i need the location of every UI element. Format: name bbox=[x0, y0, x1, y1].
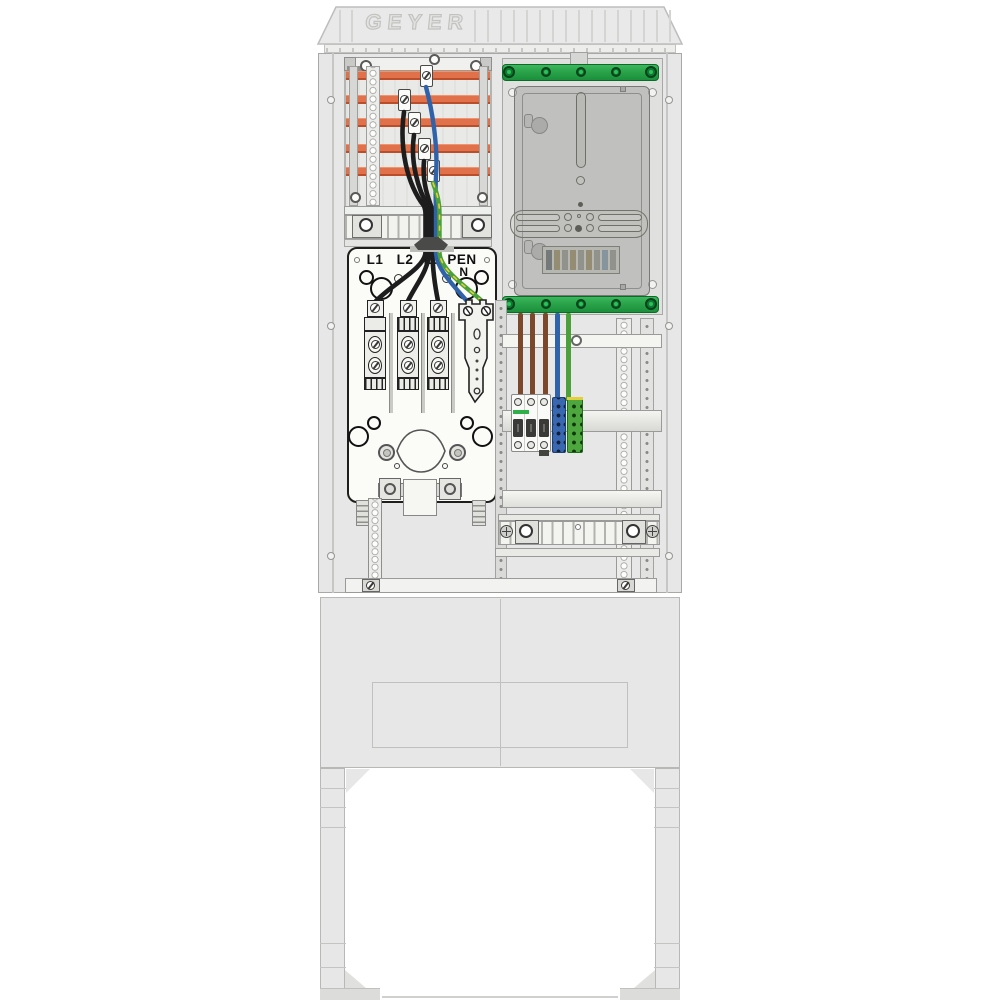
knockout-small bbox=[460, 416, 474, 430]
cover-release-tab bbox=[620, 284, 626, 290]
leg-seam bbox=[654, 827, 680, 828]
rail-screw bbox=[645, 298, 657, 310]
rail-screw bbox=[611, 67, 621, 77]
breaker-toggle-slot bbox=[530, 424, 532, 432]
ground-line bbox=[382, 996, 618, 998]
clamp-circle bbox=[519, 524, 533, 538]
crossbar-hole bbox=[571, 335, 582, 346]
cover-release-tab bbox=[620, 86, 626, 92]
cable-gland-blob bbox=[394, 428, 448, 474]
breaker-terminal bbox=[540, 398, 548, 406]
pe-terminal-yellow-mark bbox=[567, 397, 583, 400]
breaker-terminal bbox=[540, 441, 548, 449]
knockout-large bbox=[348, 426, 369, 447]
fuse-screw-icon bbox=[434, 361, 443, 370]
leg-left-chamfer bbox=[346, 769, 370, 793]
rail-screw bbox=[541, 299, 551, 309]
rail-screw bbox=[645, 66, 657, 78]
foot-left bbox=[320, 988, 380, 1000]
leg-seam bbox=[654, 967, 680, 968]
breaker-bottom-tab bbox=[539, 450, 549, 456]
crosspiece-hole bbox=[564, 224, 572, 232]
crosspiece-hole bbox=[564, 213, 572, 221]
rail-screw bbox=[576, 67, 586, 77]
fuse-screw-icon bbox=[371, 361, 380, 370]
breaker-pole-divider bbox=[537, 395, 538, 451]
comb-end-screw bbox=[646, 525, 659, 538]
pen-busbar bbox=[458, 298, 496, 416]
fuse-screw-icon bbox=[434, 340, 443, 349]
separator-pin bbox=[451, 313, 455, 413]
fuse-rail-crown bbox=[364, 317, 386, 331]
breaker-toggle-slot bbox=[543, 424, 545, 432]
wire-blue-outgoing bbox=[555, 313, 560, 401]
breaker-toggle-slot bbox=[517, 424, 519, 432]
bracket-center-box bbox=[403, 479, 437, 516]
slot-dot bbox=[578, 202, 583, 207]
crosspiece-hole bbox=[586, 224, 594, 232]
fuse-screw-icon bbox=[371, 340, 380, 349]
leg-seam bbox=[320, 967, 346, 968]
meter-pillar-illustration: GEYER L1 L2 L3 PEN bbox=[0, 0, 1000, 1000]
base-inner-outline bbox=[372, 682, 628, 748]
rail-screw bbox=[541, 67, 551, 77]
fuse-screw-icon bbox=[404, 361, 413, 370]
foot-right bbox=[620, 988, 680, 1000]
slot-hole bbox=[576, 176, 585, 185]
terminal-screw-icon bbox=[433, 303, 443, 313]
fuse-rail-foot bbox=[427, 378, 449, 390]
crosspiece-dot bbox=[577, 214, 581, 218]
clamp-circle bbox=[626, 524, 640, 538]
pe-terminal-block bbox=[567, 397, 583, 453]
breaker-terminal bbox=[527, 398, 535, 406]
knockout-small bbox=[367, 416, 381, 430]
leg-seam bbox=[654, 788, 680, 789]
wire-green-outgoing bbox=[566, 313, 571, 401]
clip-stack bbox=[472, 500, 486, 526]
screw-target-inner bbox=[454, 449, 462, 457]
wire-brown-2 bbox=[530, 313, 535, 401]
knockout-large bbox=[472, 426, 493, 447]
rail-screw bbox=[503, 66, 515, 78]
separator-pin bbox=[421, 313, 425, 413]
fuse-rail-foot bbox=[364, 378, 386, 390]
terminal-screw-icon bbox=[370, 303, 380, 313]
crossbar-low bbox=[495, 548, 660, 557]
perforated-strip bbox=[368, 498, 382, 590]
leg-seam bbox=[320, 788, 346, 789]
crosspiece-screw bbox=[575, 225, 582, 232]
separator-pin bbox=[389, 313, 393, 413]
breaker-terminal bbox=[514, 441, 522, 449]
leg-left bbox=[320, 768, 345, 1000]
pilot-hole bbox=[394, 463, 400, 469]
terminal-screw-icon bbox=[403, 303, 413, 313]
crosspiece-slot bbox=[598, 225, 642, 232]
bracket-screw bbox=[384, 483, 396, 495]
comb-center-hole bbox=[575, 524, 581, 530]
leg-right bbox=[655, 768, 680, 1000]
crossbar-top bbox=[502, 334, 662, 348]
bracket-screw bbox=[444, 483, 456, 495]
comb-end-screw bbox=[500, 525, 513, 538]
leg-right-chamfer bbox=[630, 769, 654, 793]
rail-screw bbox=[611, 299, 621, 309]
wire-black-l1 bbox=[376, 112, 426, 301]
wire-brown-1 bbox=[518, 313, 523, 401]
breaker-pole-divider bbox=[524, 395, 525, 451]
leg-seam bbox=[654, 943, 680, 944]
fuse-rail-crown bbox=[427, 317, 449, 331]
crosspiece-slot bbox=[598, 214, 642, 221]
leg-seam bbox=[320, 943, 346, 944]
breaker-terminal bbox=[527, 441, 535, 449]
meter-center-slot bbox=[576, 92, 586, 168]
rail-screw bbox=[576, 299, 586, 309]
bottom-mount-rail bbox=[345, 578, 657, 593]
rail-screw-icon bbox=[621, 581, 630, 590]
fuse-rail-foot bbox=[397, 378, 419, 390]
fuse-rail-crown bbox=[397, 317, 419, 331]
breaker-terminal bbox=[514, 398, 522, 406]
pilot-hole bbox=[442, 463, 448, 469]
screw-target-inner bbox=[383, 449, 391, 457]
crossbar-mid bbox=[502, 490, 662, 508]
crosspiece-slot bbox=[516, 225, 560, 232]
rail-screw-icon bbox=[366, 581, 375, 590]
breaker-brand-stripe bbox=[513, 410, 529, 414]
fuse-screw-icon bbox=[404, 340, 413, 349]
crosspiece-slot bbox=[516, 214, 560, 221]
leg-seam bbox=[320, 807, 346, 808]
crosspiece-hole bbox=[586, 213, 594, 221]
leg-seam bbox=[654, 807, 680, 808]
wire-brown-3 bbox=[543, 313, 548, 401]
leg-seam bbox=[320, 827, 346, 828]
n-terminal-block bbox=[552, 397, 566, 453]
